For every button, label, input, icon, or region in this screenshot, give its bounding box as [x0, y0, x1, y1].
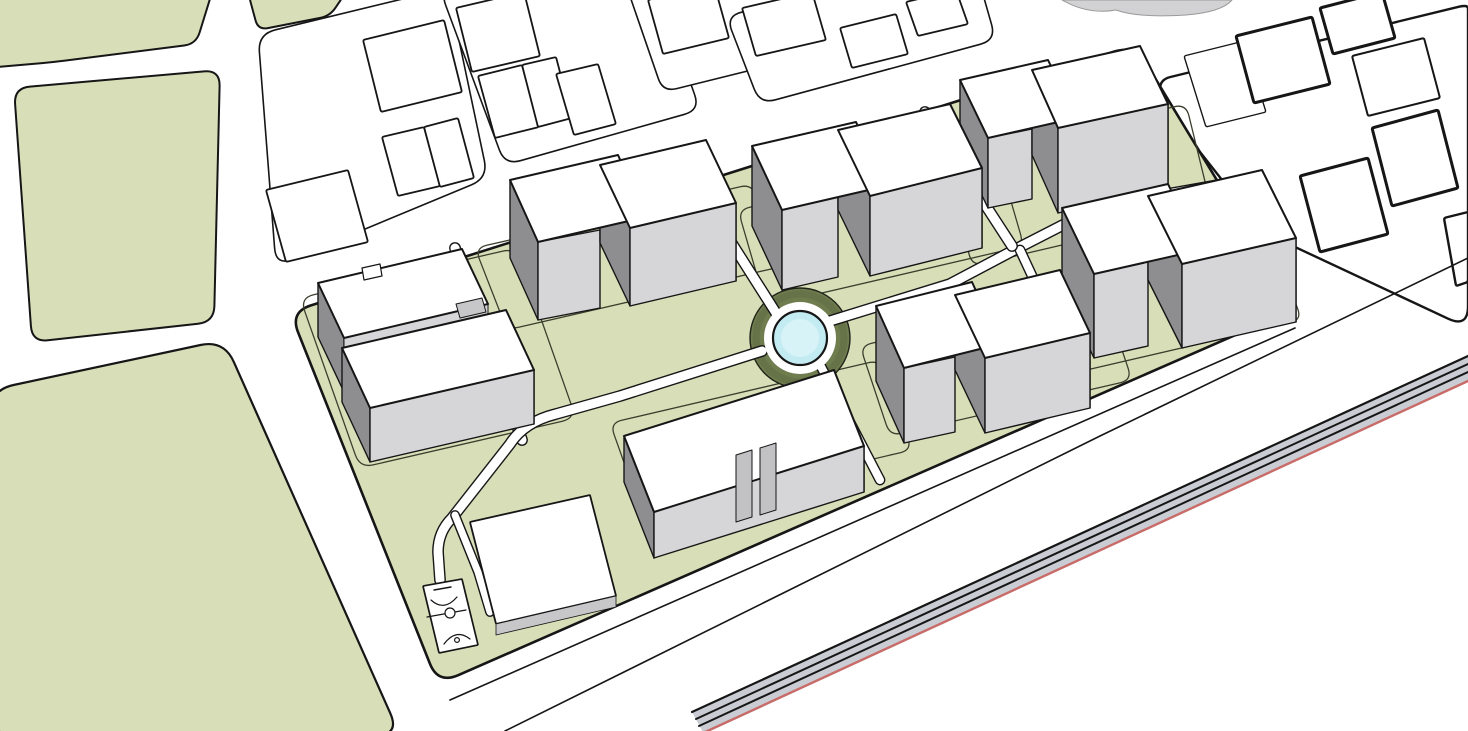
model-viewport[interactable]: [0, 0, 1468, 731]
building-5-wall-rear: [1094, 262, 1148, 358]
site-model-canvas: [0, 0, 1468, 731]
court-hoop-bottom: [455, 638, 460, 643]
building-2-wall-rear: [538, 230, 600, 320]
pool-water-center: [781, 319, 819, 357]
building-7-recess: [736, 450, 752, 522]
court-center-circle: [445, 608, 455, 618]
building-6-wall-rear: [904, 357, 955, 443]
green-block-left: [15, 71, 220, 340]
building-4-wall-rear: [988, 129, 1032, 208]
building-3-wall-rear: [782, 197, 838, 290]
building-7-recess: [760, 443, 776, 515]
